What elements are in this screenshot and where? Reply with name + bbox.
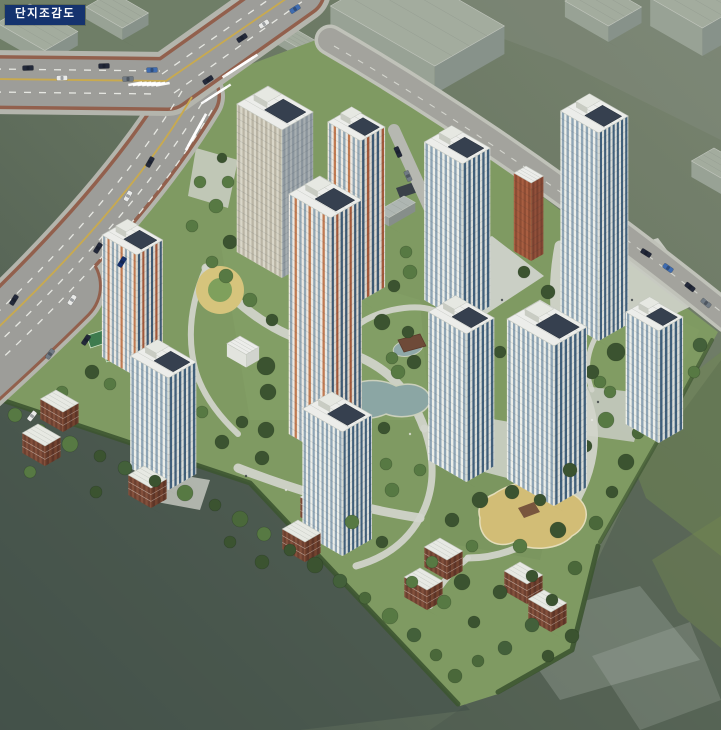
- tree: [376, 536, 388, 548]
- tree: [472, 655, 484, 667]
- tree: [378, 422, 390, 434]
- tree: [209, 199, 223, 213]
- tree: [374, 314, 390, 330]
- pedestrian-dot: [245, 475, 247, 477]
- tree: [468, 616, 480, 628]
- apartment-tower: [514, 166, 544, 268]
- tree: [260, 384, 276, 400]
- tree: [565, 629, 579, 643]
- tree: [257, 527, 271, 541]
- tree: [386, 352, 398, 364]
- tree: [542, 650, 554, 662]
- tree: [688, 366, 700, 378]
- tree: [437, 595, 451, 609]
- car: [56, 75, 67, 80]
- pedestrian-dot: [591, 419, 593, 421]
- tree: [24, 466, 36, 478]
- tree: [94, 450, 106, 462]
- tree: [546, 594, 558, 606]
- tree: [222, 176, 234, 188]
- tree: [466, 540, 478, 552]
- tree: [196, 406, 208, 418]
- view-title-badge: 단지조감도: [5, 5, 85, 25]
- tree: [525, 618, 539, 632]
- tree: [255, 451, 269, 465]
- pedestrian-dot: [631, 299, 633, 301]
- tree: [217, 153, 227, 163]
- tree: [90, 486, 102, 498]
- tree: [284, 544, 296, 556]
- apartment-tower: [428, 296, 494, 490]
- tree: [541, 285, 555, 299]
- tree: [445, 513, 459, 527]
- apartment-tower: [507, 300, 587, 513]
- tree: [518, 266, 530, 278]
- tree: [607, 343, 625, 361]
- tree: [224, 536, 236, 548]
- tree: [388, 280, 400, 292]
- tree: [382, 608, 398, 624]
- tree: [403, 265, 417, 279]
- pedestrian-dot: [409, 433, 411, 435]
- tree: [513, 539, 527, 553]
- tree: [85, 365, 99, 379]
- tree: [255, 555, 269, 569]
- tree: [345, 515, 359, 529]
- tree: [149, 475, 161, 487]
- tree: [534, 494, 546, 506]
- tree: [236, 416, 248, 428]
- tree: [426, 556, 438, 568]
- tree: [8, 408, 22, 422]
- pedestrian-dot: [285, 489, 287, 491]
- tree: [589, 516, 603, 530]
- tree: [526, 570, 538, 582]
- view-title-label: 단지조감도: [15, 8, 75, 20]
- tree: [333, 574, 347, 588]
- tree: [494, 346, 506, 358]
- tree: [505, 485, 519, 499]
- tree: [177, 485, 193, 501]
- tree: [385, 483, 399, 497]
- tree: [414, 464, 426, 476]
- tree: [104, 378, 116, 390]
- tree: [550, 522, 566, 538]
- tree: [493, 585, 507, 599]
- car: [98, 63, 109, 68]
- tree: [598, 412, 614, 428]
- apartment-tower: [626, 297, 684, 450]
- tree: [407, 628, 421, 642]
- tree: [618, 454, 634, 470]
- tree: [498, 641, 512, 655]
- tree: [194, 176, 206, 188]
- tree: [243, 293, 257, 307]
- tree: [219, 269, 233, 283]
- complex-birdseye-rendering: 단지조감도: [0, 0, 721, 730]
- tree: [258, 422, 274, 438]
- tree: [391, 365, 405, 379]
- tree: [606, 486, 618, 498]
- tree: [206, 256, 218, 268]
- tree: [223, 235, 237, 249]
- tree: [62, 436, 78, 452]
- tree: [118, 461, 132, 475]
- tree: [568, 561, 582, 575]
- tree: [430, 649, 442, 661]
- tree: [257, 357, 275, 375]
- tree: [693, 338, 707, 352]
- tree: [407, 355, 421, 369]
- tree: [209, 499, 221, 511]
- tree: [400, 246, 412, 258]
- tree: [215, 435, 229, 449]
- car: [122, 76, 133, 81]
- tree: [563, 463, 577, 477]
- tree: [266, 314, 278, 326]
- tree: [186, 220, 198, 232]
- aerial-scene: [0, 0, 721, 730]
- tree: [472, 492, 488, 508]
- tree: [454, 574, 470, 590]
- car: [146, 67, 157, 72]
- pedestrian-dot: [501, 299, 503, 301]
- tree: [406, 576, 418, 588]
- tree: [307, 557, 323, 573]
- tree: [359, 592, 371, 604]
- tree: [604, 386, 616, 398]
- pedestrian-dot: [597, 401, 599, 403]
- apartment-tower: [560, 94, 628, 348]
- car: [22, 65, 33, 70]
- tree: [380, 458, 392, 470]
- tree: [594, 376, 606, 388]
- tree: [232, 511, 248, 527]
- tree: [402, 326, 414, 338]
- tree: [448, 669, 462, 683]
